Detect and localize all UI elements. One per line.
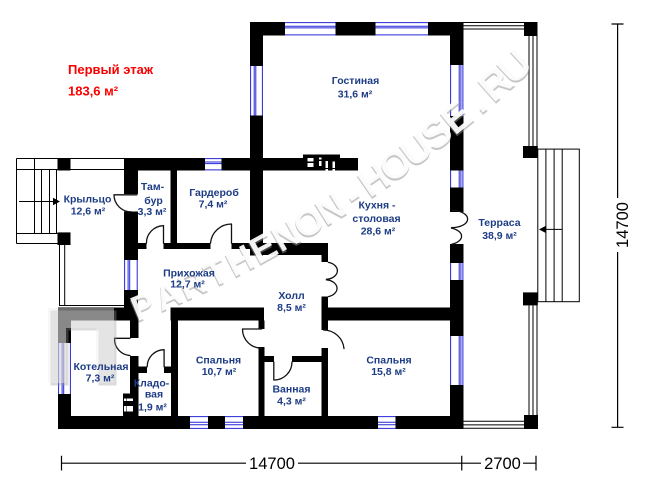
svg-text:8,5 м²: 8,5 м²: [277, 302, 306, 314]
svg-text:12,7 м²: 12,7 м²: [170, 279, 205, 291]
svg-text:вая: вая: [145, 389, 163, 401]
svg-text:10,7 м²: 10,7 м²: [202, 366, 237, 378]
svg-text:2700: 2700: [484, 455, 521, 473]
svg-text:12,6 м²: 12,6 м²: [71, 206, 106, 218]
svg-text:Ванная: Ванная: [272, 384, 310, 396]
svg-text:38,9 м²: 38,9 м²: [482, 230, 517, 242]
svg-text:14700: 14700: [614, 202, 632, 248]
svg-text:Гардероб: Гардероб: [189, 187, 239, 199]
svg-text:1,9 м²: 1,9 м²: [138, 402, 167, 414]
svg-text:14700: 14700: [249, 455, 295, 473]
svg-text:Первый этаж: Первый этаж: [68, 62, 154, 77]
svg-text:7,4 м²: 7,4 м²: [199, 199, 228, 211]
svg-text:Спальня: Спальня: [366, 355, 411, 367]
svg-text:Крыльцо: Крыльцо: [64, 194, 112, 206]
svg-text:183,6 м²: 183,6 м²: [68, 84, 119, 99]
svg-text:Кухня -: Кухня -: [358, 200, 396, 212]
svg-text:15,8 м²: 15,8 м²: [371, 366, 406, 378]
svg-text:Спальня: Спальня: [196, 355, 241, 367]
svg-text:31,6 м²: 31,6 м²: [338, 89, 373, 101]
svg-text:3,3 м²: 3,3 м²: [138, 206, 167, 218]
svg-text:столовая: столовая: [352, 213, 400, 225]
svg-text:Там-: Там-: [141, 181, 165, 193]
svg-text:7,3 м²: 7,3 м²: [86, 373, 115, 385]
svg-text:Котельная: Котельная: [74, 361, 129, 373]
svg-text:28,6 м²: 28,6 м²: [361, 226, 396, 238]
svg-text:Холл: Холл: [278, 290, 304, 302]
svg-text:Терраса: Терраса: [478, 217, 520, 229]
svg-text:Гостиная: Гостиная: [332, 75, 379, 87]
svg-text:4,3 м²: 4,3 м²: [277, 396, 306, 408]
